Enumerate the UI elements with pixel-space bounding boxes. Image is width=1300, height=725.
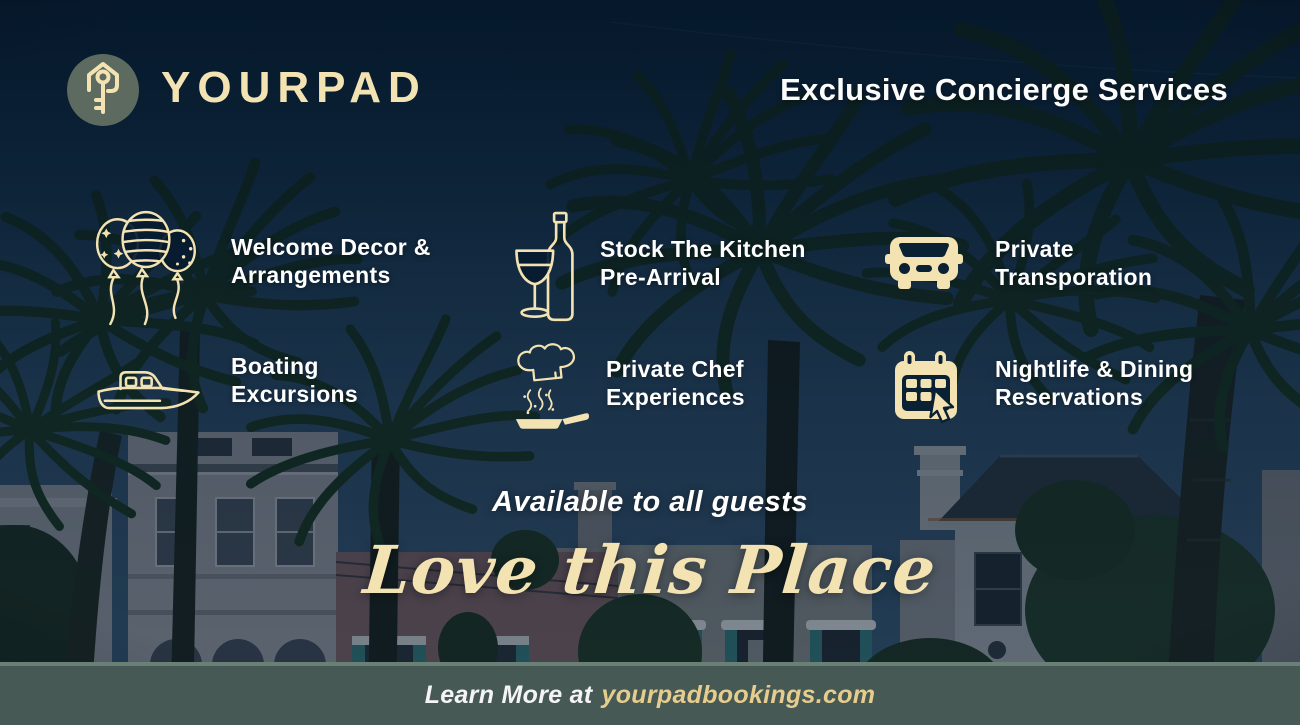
concierge-flyer: YOURPAD Exclusive Concierge Services bbox=[0, 0, 1300, 725]
service-label: Welcome Decor &Arrangements bbox=[231, 233, 431, 289]
page-title: Exclusive Concierge Services bbox=[780, 72, 1228, 108]
service-label: BoatingExcursions bbox=[231, 352, 358, 408]
service-label: Nightlife & DiningReservations bbox=[995, 355, 1193, 411]
key-icon bbox=[81, 60, 125, 120]
calendar-cursor-icon bbox=[891, 349, 965, 429]
chef-hat-pan-icon bbox=[500, 342, 596, 432]
wine-bottle-glass-icon bbox=[505, 210, 589, 334]
footer-website-link[interactable]: yourpadbookings.com bbox=[602, 681, 876, 710]
brand-name: YOURPAD bbox=[161, 63, 427, 113]
tagline-subtitle: Available to all guests bbox=[0, 486, 1300, 519]
service-label: PrivateTransporation bbox=[995, 235, 1152, 291]
boat-icon bbox=[88, 354, 208, 420]
brand-logo bbox=[67, 54, 139, 126]
car-icon bbox=[885, 229, 963, 293]
service-label: Private ChefExperiences bbox=[606, 355, 745, 411]
footer-text: Learn More at bbox=[425, 681, 593, 710]
tagline-script: Love this Place bbox=[0, 531, 1300, 609]
balloons-icon bbox=[92, 206, 206, 326]
service-label: Stock The KitchenPre-Arrival bbox=[600, 235, 806, 291]
footer-bar: Learn More at yourpadbookings.com bbox=[0, 662, 1300, 725]
